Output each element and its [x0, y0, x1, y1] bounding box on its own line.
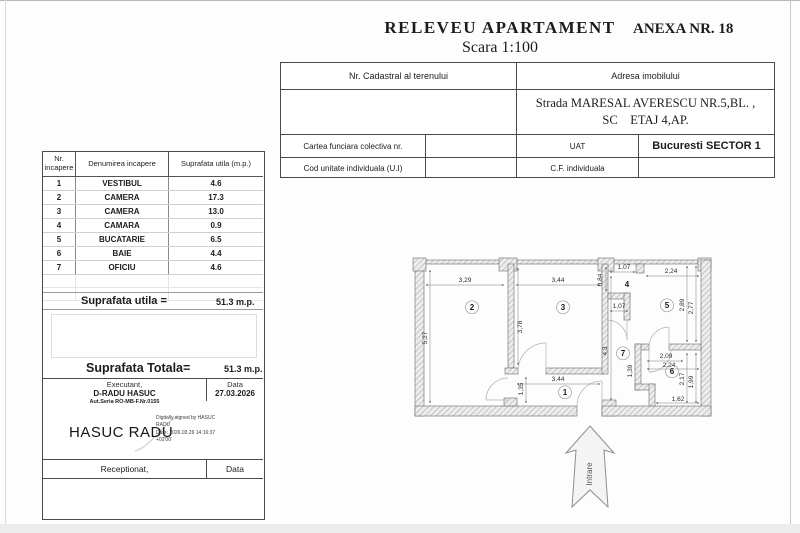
table-row: 2CAMERA17.3 [43, 191, 263, 205]
uat-value: Bucuresti SECTOR 1 [639, 135, 774, 157]
scale-label: Scara 1:100 [330, 39, 670, 57]
page-top-edge [0, 0, 800, 1]
land-book-row: Cartea funciara colectiva nr. UAT Bucure… [281, 134, 774, 157]
executant-block: Executant, D-RADU HASUC Aut.Seria RO-MB-… [43, 379, 206, 401]
dimension-label: 3,29 [459, 277, 472, 284]
dimension-label: 2,77 [688, 301, 695, 314]
useful-area-value: 51.3 m.p. [216, 297, 255, 307]
room-number: 3 [561, 303, 566, 312]
cadastral-header-cell: Nr. Cadastral al terenului [281, 63, 517, 89]
dimension-label: 1,07 [613, 303, 626, 310]
empty-zone [43, 310, 263, 361]
date-label: Data [207, 380, 263, 389]
dimension-label: 2,89 [679, 298, 686, 311]
room-number: 5 [665, 301, 670, 310]
date-value: 27.03.2026 [207, 389, 263, 398]
header-name: Denumirea incapere [76, 152, 169, 176]
table-row: 6BAIE4.4 [43, 247, 263, 261]
unit-code-label: Cod unitate individuala (U.I) [281, 158, 426, 178]
table-row: 3CAMERA13.0 [43, 205, 263, 219]
executant-row: Executant, D-RADU HASUC Aut.Seria RO-MB-… [43, 378, 263, 401]
dimension-label: 1,35 [518, 382, 525, 395]
address-line2: SC ETAJ 4,AP. [602, 112, 688, 129]
info-header-row: Nr. Cadastral al terenului Adresa imobil… [281, 63, 774, 89]
room-number: 4 [625, 280, 630, 289]
room-number: 1 [563, 388, 568, 397]
faint-empty-box [51, 314, 257, 358]
received-date-label: Data [206, 460, 263, 478]
dimension-label: 3,78 [517, 320, 524, 333]
cadastral-value-cell [281, 90, 517, 134]
dimension-label: 3,44 [552, 277, 565, 284]
land-book-label: Cartea funciara colectiva nr. [281, 135, 426, 157]
room-table-header: Nr. incapere Denumirea incapere Suprafat… [43, 152, 263, 177]
cf-value [639, 158, 774, 178]
room-number: 2 [470, 303, 475, 312]
unit-code-row: Cod unitate individuala (U.I) C.F. indiv… [281, 157, 774, 178]
useful-area-row: Suprafata utila = 51.3 m.p. [43, 292, 263, 310]
dimension-label: 2,09 [660, 353, 673, 360]
executant-name: D-RADU HASUC [43, 389, 206, 399]
table-row: 7OFICIU4.6 [43, 261, 263, 275]
annex-label: ANEXA NR. 18 [633, 21, 733, 38]
total-area-row: Suprafata Totala= 51.3 m.p. [43, 361, 263, 378]
header-nr: Nr. incapere [43, 152, 76, 176]
page-left-edge [5, 0, 6, 533]
page-right-edge [790, 0, 791, 533]
received-label: Receptionat, [43, 460, 206, 478]
room-table: Nr. incapere Denumirea incapere Suprafat… [42, 151, 265, 520]
address-header-cell: Adresa imobilului [517, 63, 774, 89]
digital-signature-note: Digitally signed by HASUC RADU Date: 202… [156, 415, 215, 444]
table-row: 1VESTIBUL4.6 [43, 177, 263, 191]
document-title: RELEVEU APARTAMENT [330, 18, 670, 38]
dimension-label: 1,07 [618, 264, 631, 271]
entrance-label: Intrare [585, 462, 594, 486]
received-row: Receptionat, Data [43, 459, 263, 479]
total-area-label: Suprafata Totala= [86, 361, 190, 375]
land-book-value [426, 135, 517, 157]
dimension-label: 0,84 [597, 273, 604, 286]
dimension-label: 1,62 [672, 396, 685, 403]
header-area: Suprafata utila (m.p.) [169, 152, 263, 176]
address-value-cell: Strada MARESAL AVERESCU NR.5,BL. , SC ET… [517, 90, 774, 134]
useful-area-label: Suprafata utila = [81, 295, 167, 307]
room-rows: 1VESTIBUL4.6 2CAMERA17.3 3CAMERA13.0 4CA… [43, 177, 263, 301]
total-area-value: 51.3 m.p. [224, 364, 263, 374]
dimension-label: 1,99 [688, 375, 695, 388]
empty-row [43, 275, 263, 288]
cadastral-info-table: Nr. Cadastral al terenului Adresa imobil… [280, 62, 775, 178]
executant-label: Executant, [43, 380, 206, 389]
room-number: 6 [670, 367, 675, 376]
uat-label: UAT [517, 135, 639, 157]
date-block: Data 27.03.2026 [206, 379, 263, 401]
entrance-arrow: Intrare [566, 426, 614, 507]
dimension-label: 5,27 [422, 331, 429, 344]
title-block: RELEVEU APARTAMENT Scara 1:100 [330, 18, 670, 57]
dimension-label: 4,3 [602, 346, 609, 355]
cf-label: C.F. individuala [517, 158, 639, 178]
room-number: 7 [621, 349, 626, 358]
unit-code-value [426, 158, 517, 178]
dimension-label: 2,24 [665, 268, 678, 275]
address-line1: Strada MARESAL AVERESCU NR.5,BL. , [536, 95, 755, 112]
dimension-label: 3,44 [552, 376, 565, 383]
table-row: 5BUCATARIE6.5 [43, 233, 263, 247]
floor-plan: 3,293,441,072,240,845,273,781,072,892,77… [398, 250, 728, 520]
address-row: Strada MARESAL AVERESCU NR.5,BL. , SC ET… [281, 89, 774, 134]
dimension-label: 1,39 [627, 364, 634, 377]
signature-zone: HASUC RADU Digitally signed by HASUC RAD… [43, 401, 263, 459]
page-bottom-edge [0, 524, 800, 533]
table-row: 4CAMARA0.9 [43, 219, 263, 233]
dimension-label: 2,17 [679, 372, 686, 385]
